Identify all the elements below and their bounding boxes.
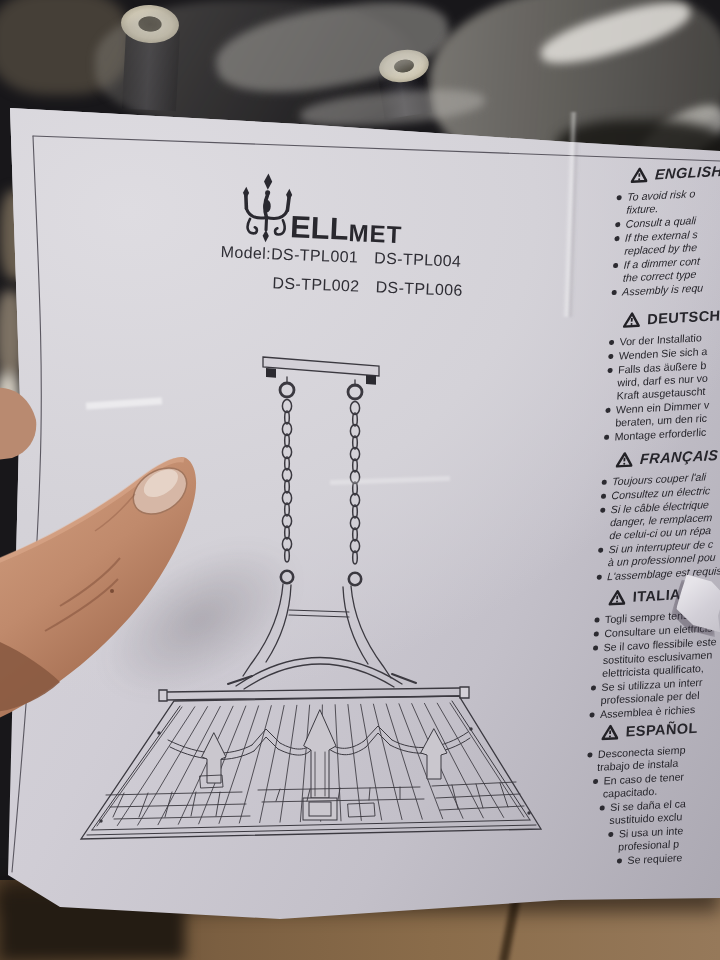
model-label: Model:	[220, 243, 271, 262]
language-section: DEUTSCHVor der InstallatioWenden Sie sic…	[573, 302, 720, 447]
bullet-dot	[594, 617, 599, 622]
brand-logo: ELL MET	[234, 161, 468, 257]
bullet-dot	[612, 290, 617, 295]
language-section: ESPAÑOLDesconecta siemptrabajo de instal…	[550, 714, 720, 872]
bullet-dot	[615, 222, 620, 227]
bullet-dot	[608, 354, 613, 359]
bullet-dot	[598, 548, 603, 553]
bullet-dot	[602, 480, 607, 485]
language-section: ENGLISHTo avoid risk ofixture.Consult a …	[580, 157, 720, 302]
bullet-dot	[605, 408, 610, 413]
section-title: ENGLISH	[655, 163, 720, 183]
bullet-dot	[608, 832, 613, 837]
section-title: ESPAÑOL	[625, 720, 698, 740]
bullet-dot	[591, 685, 596, 690]
bullet-dot	[594, 631, 599, 636]
bullet-dot	[601, 494, 606, 499]
bullet-dot	[614, 236, 619, 241]
bullet-dot	[607, 368, 612, 373]
bullet-dot	[587, 752, 592, 757]
warning-triangle-icon	[630, 167, 648, 184]
bullet-dot	[593, 779, 598, 784]
bullet-dot	[600, 508, 605, 513]
bullet-item: To avoid risk ofixture.	[616, 180, 720, 217]
section-header: ENGLISH	[630, 157, 720, 184]
warning-triangle-icon	[623, 312, 641, 329]
hand-thumb	[0, 370, 240, 730]
instruction-line: Se requiere	[627, 851, 683, 867]
bullet-dot	[597, 575, 602, 580]
bullet-dot	[617, 858, 622, 863]
section-header: FRANÇAIS	[615, 441, 720, 468]
warning-triangle-icon	[601, 724, 619, 741]
photo-of-instruction-sheet: ELL MET Model:DS-TPL001DS-TPL004 DS-TPL0…	[0, 0, 720, 960]
bullet-dot	[613, 263, 618, 268]
bullet-dot	[609, 340, 614, 345]
bullet-dot	[617, 195, 622, 200]
warning-triangle-icon	[615, 451, 633, 468]
bullet-dot	[589, 712, 594, 717]
language-section: FRANÇAISToujours couper l'aliConsultez u…	[565, 441, 720, 586]
bullet-dot	[604, 435, 609, 440]
model-code: DS-TPL004	[374, 249, 462, 269]
model-code: DS-TPL006	[375, 278, 463, 298]
bullet-dot	[600, 805, 605, 810]
model-code: DS-TPL001	[271, 245, 359, 265]
finger-tip	[0, 388, 36, 460]
model-code: DS-TPL002	[272, 274, 360, 294]
section-title: DEUTSCH	[647, 307, 720, 327]
section-title: FRANÇAIS	[640, 447, 719, 467]
bullet-dot	[593, 645, 598, 650]
section-header: DEUTSCH	[623, 302, 720, 329]
warning-triangle-icon	[608, 589, 626, 606]
model-numbers: Model:DS-TPL001DS-TPL004 DS-TPL002DS-TPL…	[219, 243, 464, 300]
